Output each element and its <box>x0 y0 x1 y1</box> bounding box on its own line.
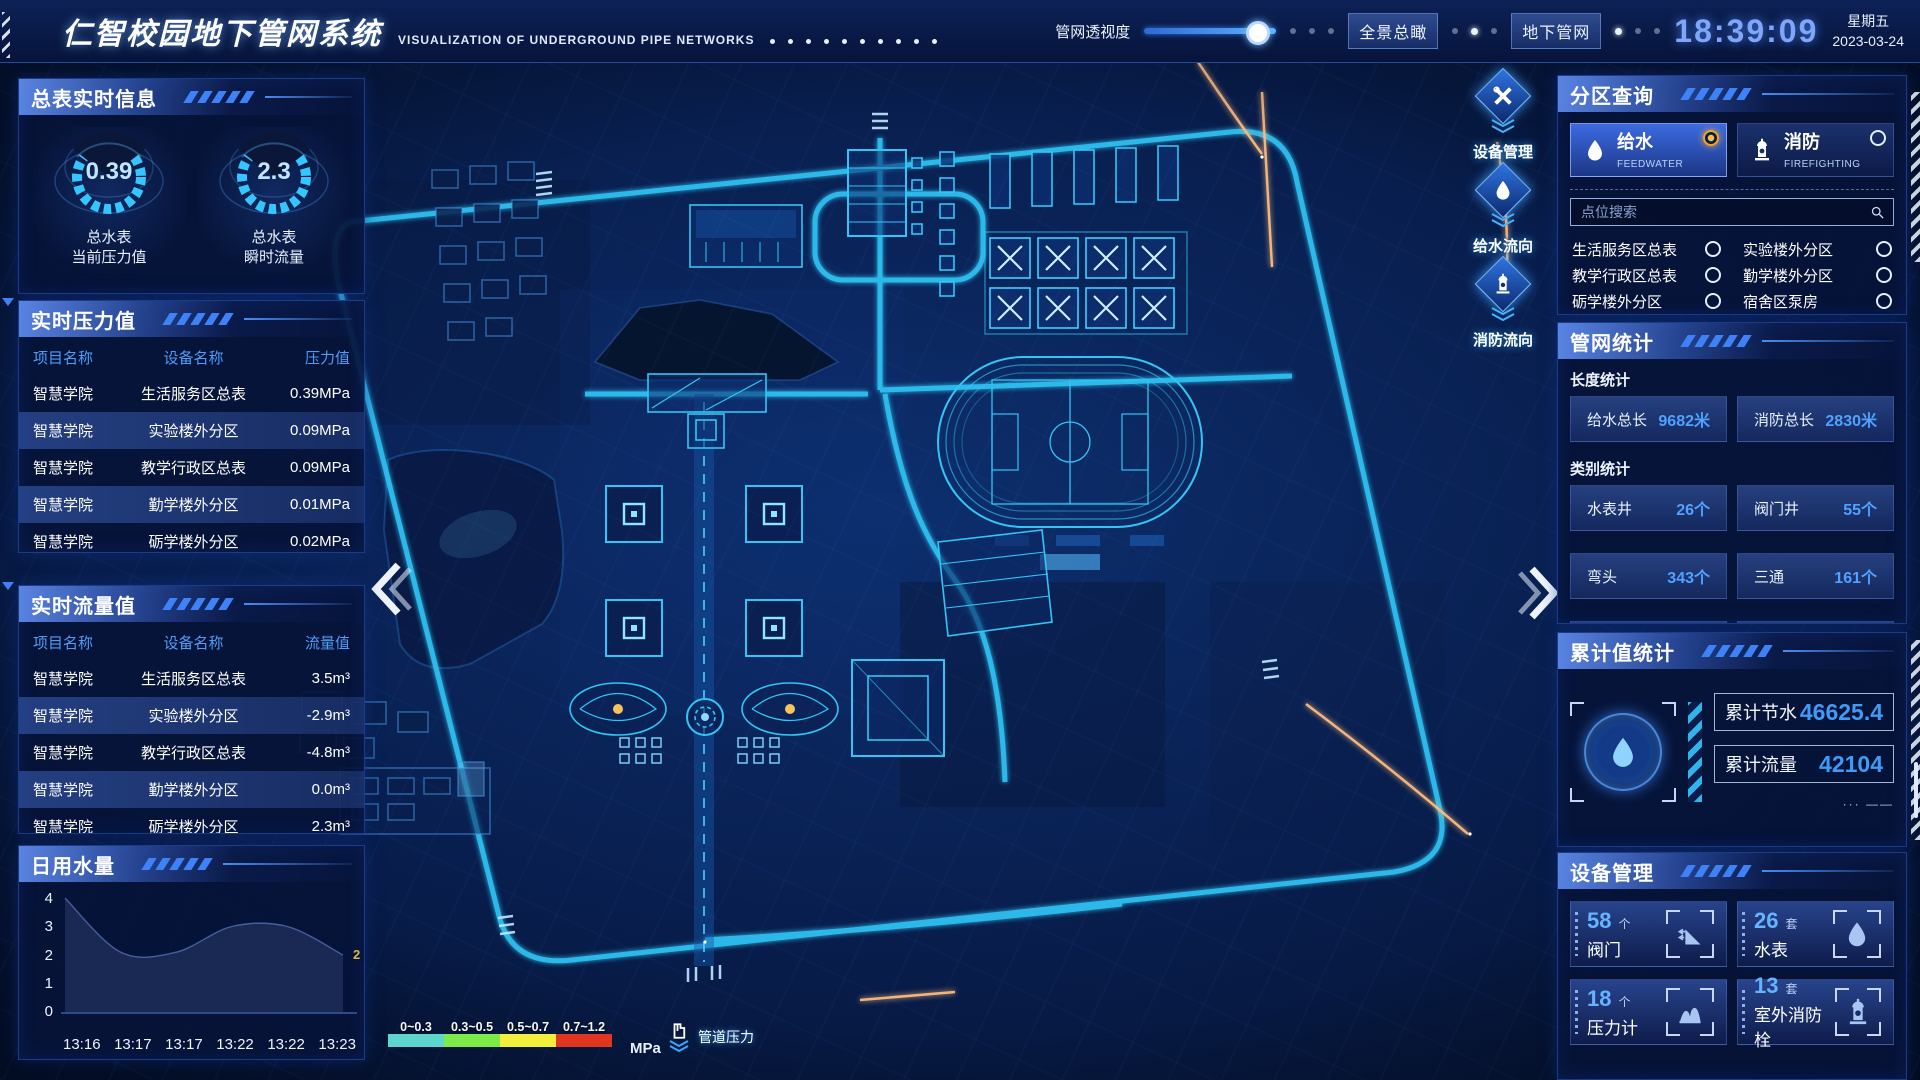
device-manage-panel: 设备管理 58个 阀门 26套 水表 18个 压力计 13套 室外 <box>1557 852 1907 1080</box>
col-value: 流量值 <box>258 632 350 653</box>
table-row: 智慧学院 砺学楼外分区 2.3m³ <box>19 808 364 834</box>
radio-icon[interactable] <box>1705 267 1721 283</box>
stat-card: 消防总长 2830米 <box>1737 396 1894 442</box>
date: 2023-03-24 <box>1832 33 1904 49</box>
edge-marker-decor <box>2 298 14 306</box>
panel-title: 设备管理 <box>1570 857 1654 886</box>
col-device: 设备名称 <box>129 632 258 653</box>
col-device: 设备名称 <box>129 347 258 368</box>
panel-line-decor <box>1762 870 1894 872</box>
panel-slashes-decor <box>1684 865 1754 877</box>
table-row: 智慧学院 教学行政区总表 0.09MPa <box>19 449 364 486</box>
overview-button[interactable]: 全景总瞰 <box>1348 13 1438 49</box>
water-drop-icon <box>1475 162 1532 219</box>
pressure-panel: 实时压力值 项目名称 设备名称 压力值 智慧学院 生活服务区总表 0.39MPa… <box>18 300 365 553</box>
legend-range: 0.5~0.7 <box>500 1020 556 1034</box>
device-card-hydrants[interactable]: 13套 室外消防栓 <box>1737 979 1894 1045</box>
dots-decor <box>1615 28 1660 35</box>
panel-line-decor <box>265 96 352 98</box>
zone-item[interactable]: 实验楼外分区 <box>1743 236 1892 262</box>
col-value: 压力值 <box>258 347 350 368</box>
panel-title: 实时压力值 <box>31 305 136 334</box>
table-row: 智慧学院 生活服务区总表 0.39MPa <box>19 375 364 412</box>
legend-swatch <box>500 1034 556 1047</box>
category-stats-label: 类别统计 <box>1570 458 1894 479</box>
flow-panel: 实时流量值 项目名称 设备名称 流量值 智慧学院 生活服务区总表 3.5m³ 智… <box>18 585 365 834</box>
table-row: 智慧学院 教学行政区总表 -4.8m³ <box>19 734 364 771</box>
gauge-label-line2: 当前压力值 <box>33 248 185 268</box>
pan-left-arrow[interactable] <box>366 560 416 618</box>
gauge-value: 0.39 <box>86 158 133 185</box>
panel-slashes-decor <box>1705 645 1775 657</box>
legend-range: 0.3~0.5 <box>444 1020 500 1034</box>
panel-slashes-decor <box>145 858 215 870</box>
scrollbar-thumb[interactable] <box>1914 762 1918 818</box>
legend-unit: MPa <box>630 1040 661 1057</box>
radio-icon[interactable] <box>1876 267 1892 283</box>
edge-zigzag-decor <box>1911 92 1920 262</box>
gauge-label-line1: 总水表 <box>33 228 185 248</box>
table-row: 智慧学院 勤学楼外分区 0.0m³ <box>19 771 364 808</box>
table-row: 智慧学院 实验楼外分区 -2.9m³ <box>19 697 364 734</box>
map-feedwater-flow-button[interactable]: 给水流向 <box>1468 166 1538 256</box>
panel-header: 总表实时信息 <box>19 79 364 115</box>
cumulative-panel: 累计值统计 累计节水 46625.4 累计流量 42104 ··· —— <box>1557 632 1907 847</box>
zone-item[interactable]: 砺学楼外分区 <box>1572 288 1721 310</box>
hydrant-icon <box>1835 988 1881 1036</box>
dots-decor <box>1452 28 1497 35</box>
gauge-label-line2: 瞬时流量 <box>198 248 350 268</box>
tab-feedwater[interactable]: 给水 FEEDWATER <box>1570 123 1727 177</box>
hydrant-icon <box>1750 138 1774 162</box>
legend-range: 0~0.3 <box>388 1020 444 1034</box>
panel-slashes-decor <box>166 598 236 610</box>
hatch-divider-decor <box>1688 702 1702 802</box>
clock: 18:39:09 <box>1674 13 1818 50</box>
app-title: 仁智校园地下管网系统 <box>62 9 382 53</box>
side-button-label: 消防流向 <box>1468 329 1538 350</box>
pressure-legend: 0~0.3 0.3~0.5 0.5~0.7 0.7~1.2 <box>388 1020 612 1047</box>
tools-icon <box>1475 68 1532 125</box>
water-drop-icon <box>1833 910 1881 958</box>
length-stats-label: 长度统计 <box>1570 369 1894 390</box>
device-card-water-meters[interactable]: 26套 水表 <box>1737 901 1894 967</box>
panel-line-decor <box>223 863 352 865</box>
panel-title: 实时流量值 <box>31 590 136 619</box>
header-zigzag-decor <box>2 12 10 58</box>
cumulative-flow-box: 累计流量 42104 <box>1714 745 1894 783</box>
zone-item[interactable]: 宿舍区泵房 <box>1743 288 1892 310</box>
stat-card: 水表井 26个 <box>1570 485 1727 531</box>
panel-line-decor <box>1762 93 1894 95</box>
panel-line-decor <box>1783 650 1894 652</box>
dots-decor <box>1290 28 1334 34</box>
x-axis-labels: 13:1613:17 13:1713:22 13:2213:23 <box>63 1036 356 1053</box>
daily-water-chart: 4 3 2 1 0 2 <box>25 886 358 1036</box>
valve-icon <box>1666 910 1714 958</box>
date-block: 星期五 2023-03-24 <box>1832 11 1904 52</box>
radio-selected-icon[interactable] <box>1703 130 1719 146</box>
stat-card-clipped <box>1737 621 1894 624</box>
water-drop-icon <box>1583 138 1607 162</box>
zone-item[interactable]: 勤学楼外分区 <box>1743 262 1892 288</box>
gauge-dial: 2.3 <box>204 127 344 223</box>
edge-marker-decor <box>2 582 14 590</box>
stat-card: 弯头 343个 <box>1570 553 1727 599</box>
radio-icon[interactable] <box>1870 130 1886 146</box>
water-tile <box>1570 702 1676 802</box>
weekday: 星期五 <box>1847 13 1889 29</box>
legend-swatch <box>388 1034 444 1047</box>
map-device-manage-button[interactable]: 设备管理 <box>1468 72 1538 162</box>
table-row: 智慧学院 生活服务区总表 3.5m³ <box>19 660 364 697</box>
tab-firefighting[interactable]: 消防 FIREFIGHTING <box>1737 123 1894 177</box>
pressure-gauge-card: 0.39 总水表 当前压力值 <box>33 127 185 285</box>
gauge-value: 2.3 <box>257 158 290 185</box>
col-project: 项目名称 <box>33 347 129 368</box>
app-subtitle: VISUALIZATION OF UNDERGROUND PIPE NETWOR… <box>398 33 754 47</box>
radio-icon[interactable] <box>1705 293 1721 309</box>
pipe-pressure-label: 管道压力 <box>698 1027 754 1047</box>
dots-decor: ··· —— <box>1843 797 1894 811</box>
panel-slashes-decor <box>166 313 236 325</box>
device-card-valves[interactable]: 58个 阀门 <box>1570 901 1727 967</box>
side-button-label: 设备管理 <box>1468 141 1538 162</box>
daily-water-panel: 日用水量 4 3 2 1 0 2 13:1613:17 13:1713:22 1… <box>18 845 365 1060</box>
dashed-divider <box>1570 189 1894 190</box>
pipe-pressure-toggle[interactable]: 管道压力 <box>668 1022 754 1052</box>
pipe-stats-panel: 管网统计 长度统计 给水总长 9682米 消防总长 2830米 类别统计 水表井… <box>1557 322 1907 624</box>
table-row: 智慧学院 砺学楼外分区 0.02MPa <box>19 523 364 553</box>
legend-swatch <box>444 1034 500 1047</box>
transparency-slider[interactable] <box>1144 28 1276 34</box>
panel-title: 日用水量 <box>31 850 115 879</box>
stat-card: 给水总长 9682米 <box>1570 396 1727 442</box>
panel-title: 分区查询 <box>1570 80 1654 109</box>
zone-item[interactable]: 生活服务区总表 <box>1572 236 1721 262</box>
stat-card: 阀门井 55个 <box>1737 485 1894 531</box>
panel-title: 总表实时信息 <box>31 83 157 112</box>
panel-slashes-decor <box>187 91 257 103</box>
top-header: 仁智校园地下管网系统 VISUALIZATION OF UNDERGROUND … <box>0 0 1920 63</box>
search-icon[interactable] <box>1870 205 1885 220</box>
legend-swatch <box>556 1034 612 1047</box>
radio-icon[interactable] <box>1705 241 1721 257</box>
panel-line-decor <box>1762 340 1894 342</box>
underground-button[interactable]: 地下管网 <box>1511 13 1601 49</box>
point-search-input[interactable] <box>1579 203 1870 221</box>
stat-card: 三通 161个 <box>1737 553 1894 599</box>
meter-info-panel: 总表实时信息 0.39 总水表 当前压力值 <box>18 78 365 294</box>
zone-item[interactable]: 教学行政区总表 <box>1572 262 1721 288</box>
table-row: 智慧学院 勤学楼外分区 0.01MPa <box>19 486 364 523</box>
slider-thumb[interactable] <box>1246 21 1270 45</box>
search-box[interactable] <box>1570 198 1894 226</box>
table-header: 项目名称 设备名称 压力值 <box>19 337 364 375</box>
legend-range: 0.7~1.2 <box>556 1020 612 1034</box>
water-drop-icon <box>1584 713 1662 791</box>
flow-gauge-card: 2.3 总水表 瞬时流量 <box>198 127 350 285</box>
col-project: 项目名称 <box>33 632 129 653</box>
radio-icon[interactable] <box>1876 241 1892 257</box>
cumulative-saved-box: 累计节水 46625.4 <box>1714 693 1894 731</box>
table-row: 智慧学院 实验楼外分区 0.09MPa <box>19 412 364 449</box>
header-dots-decor <box>770 39 937 44</box>
panel-title: 累计值统计 <box>1570 637 1675 666</box>
gauge-dial: 0.39 <box>39 127 179 223</box>
table-header: 项目名称 设备名称 流量值 <box>19 622 364 660</box>
map-stage: 设备管理 给水流向 消防流向 0~0.3 0.3~0.5 0.5~0.7 0.7… <box>0 62 1920 1080</box>
pressure-gauge-icon <box>1666 988 1714 1036</box>
map-fire-flow-button[interactable]: 消防流向 <box>1468 260 1538 350</box>
hydrant-icon <box>1475 256 1532 313</box>
stat-card-clipped <box>1570 621 1727 624</box>
chart-end-label: 2 <box>353 947 360 962</box>
panel-title: 管网统计 <box>1570 327 1654 356</box>
panel-slashes-decor <box>1684 88 1754 100</box>
side-button-label: 给水流向 <box>1468 235 1538 256</box>
panel-slashes-decor <box>1684 335 1754 347</box>
device-card-pressure-gauges[interactable]: 18个 压力计 <box>1570 979 1727 1045</box>
pressure-meter-icon <box>668 1022 690 1052</box>
gauge-label-line1: 总水表 <box>198 228 350 248</box>
transparency-label: 管网透视度 <box>1055 21 1130 42</box>
zone-list: 生活服务区总表 实验楼外分区 教学行政区总表 勤学楼外分区 砺学楼外分区 宿舍区… <box>1558 234 1906 310</box>
radio-icon[interactable] <box>1876 293 1892 309</box>
panel-line-decor <box>244 603 352 605</box>
zone-query-panel: 分区查询 给水 FEEDWATER 消防 FIREFIGHTING 生活 <box>1557 75 1907 315</box>
panel-line-decor <box>244 318 352 320</box>
